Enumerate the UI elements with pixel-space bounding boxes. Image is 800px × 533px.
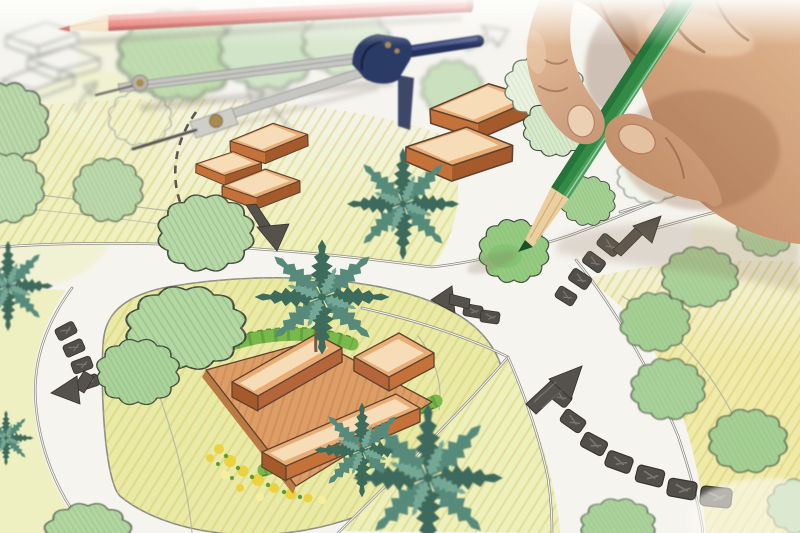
tree bbox=[73, 159, 142, 222]
tree bbox=[97, 339, 179, 404]
plan-photo-canvas bbox=[0, 0, 800, 533]
photo-landscape-plan bbox=[0, 0, 800, 533]
compass-collar bbox=[210, 115, 223, 128]
tree bbox=[631, 359, 705, 420]
tree-outline bbox=[109, 91, 172, 145]
tree bbox=[158, 195, 253, 271]
top-blur-wash bbox=[0, 0, 800, 46]
conifer-shrub bbox=[347, 148, 459, 260]
stone bbox=[480, 310, 501, 325]
tree bbox=[620, 293, 689, 352]
tree bbox=[709, 410, 787, 473]
palm-conifer bbox=[255, 240, 390, 355]
